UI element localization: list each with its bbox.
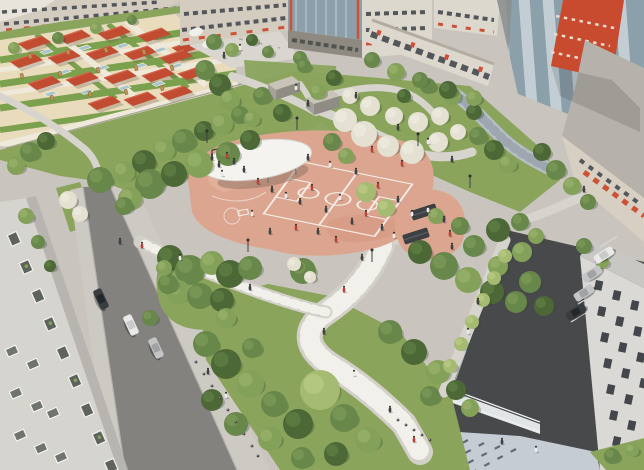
- person-head: [377, 182, 379, 184]
- person: [413, 438, 416, 443]
- tree-highlight: [263, 394, 276, 407]
- tree-highlight: [22, 144, 32, 154]
- tree-highlight: [160, 276, 170, 286]
- person-head: [535, 446, 537, 448]
- tree-highlight: [444, 360, 451, 367]
- tree-highlight: [32, 236, 39, 243]
- tree-highlight: [486, 142, 496, 152]
- person: [355, 170, 358, 175]
- person: [243, 168, 246, 173]
- person: [249, 286, 252, 291]
- tree-highlight: [202, 253, 214, 265]
- tree-highlight: [428, 362, 440, 374]
- tree-highlight: [213, 115, 224, 126]
- person: [141, 244, 144, 249]
- person: [323, 330, 326, 335]
- person: [119, 240, 122, 245]
- bollard-cap: [251, 445, 252, 446]
- bollard-cap: [195, 361, 196, 362]
- tree-highlight: [134, 152, 146, 164]
- tree-highlight: [233, 108, 242, 117]
- person: [451, 158, 454, 163]
- tree-highlight: [159, 248, 172, 261]
- person-head: [427, 206, 429, 208]
- person: [211, 156, 214, 161]
- tree-highlight: [529, 230, 537, 238]
- tree-highlight: [365, 54, 373, 62]
- tree-highlight: [19, 210, 27, 218]
- person: [535, 448, 538, 453]
- person-head: [451, 156, 453, 158]
- tree-highlight: [362, 98, 372, 108]
- tree-highlight: [410, 242, 422, 254]
- tree-highlight: [357, 430, 370, 443]
- person: [239, 46, 242, 51]
- person-head: [221, 170, 223, 172]
- tree-highlight: [207, 36, 215, 44]
- tree-highlight: [507, 293, 518, 304]
- tree-highlight: [211, 76, 222, 87]
- tree-highlight: [260, 429, 272, 441]
- tree-highlight: [457, 270, 470, 283]
- person-head: [449, 230, 451, 232]
- person-head: [411, 210, 413, 212]
- person-head: [271, 186, 273, 188]
- person-head: [295, 84, 297, 86]
- person: [381, 226, 384, 231]
- tree-highlight: [89, 170, 102, 183]
- person: [233, 160, 236, 165]
- tree-highlight: [490, 258, 500, 268]
- person-head: [233, 158, 235, 160]
- tree-highlight: [91, 23, 97, 29]
- tree-highlight: [380, 322, 392, 334]
- tree-highlight: [339, 150, 347, 158]
- tree-highlight: [293, 449, 304, 460]
- tree-highlight: [467, 106, 475, 114]
- person: [339, 196, 342, 201]
- person: [335, 238, 338, 243]
- tree-highlight: [387, 109, 396, 118]
- tree-highlight: [402, 142, 414, 154]
- bollard-cap: [227, 409, 228, 410]
- person: [351, 220, 354, 225]
- tree-highlight: [501, 157, 510, 166]
- tree-highlight: [196, 123, 206, 133]
- person: [401, 162, 404, 167]
- tree-highlight: [222, 92, 232, 102]
- tree-highlight: [514, 244, 524, 254]
- person: [317, 230, 320, 235]
- bollard-cap: [429, 439, 430, 440]
- person-head: [343, 286, 345, 288]
- tree-highlight: [521, 273, 532, 284]
- person-head: [239, 44, 241, 46]
- person: [361, 256, 364, 261]
- person-head: [501, 438, 503, 440]
- tree-highlight: [453, 219, 462, 228]
- person: [389, 408, 392, 413]
- tree-highlight: [413, 74, 421, 82]
- person: [299, 200, 302, 205]
- tree-highlight: [218, 310, 228, 320]
- tree-highlight: [422, 388, 432, 398]
- tree-highlight: [163, 164, 176, 177]
- tree-highlight: [39, 134, 48, 143]
- tree-highlight: [245, 113, 253, 121]
- light-head: [247, 239, 250, 242]
- tree-highlight: [499, 250, 506, 257]
- person: [501, 440, 504, 445]
- tree-highlight: [581, 196, 589, 204]
- tree-highlight: [288, 258, 295, 265]
- tree-highlight: [326, 444, 338, 456]
- tree-highlight: [53, 33, 59, 39]
- person-head: [119, 238, 121, 240]
- person-head: [381, 224, 383, 226]
- tree-highlight: [174, 131, 186, 143]
- person-head: [413, 436, 415, 438]
- person-head: [251, 210, 253, 212]
- tree-highlight: [536, 298, 546, 308]
- person-head: [353, 370, 355, 372]
- person-head: [257, 178, 259, 180]
- tree-highlight: [389, 65, 398, 74]
- bollard-cap: [219, 397, 220, 398]
- tree-highlight: [379, 137, 390, 148]
- person: [397, 126, 400, 131]
- tree-highlight: [128, 16, 133, 21]
- person: [269, 230, 272, 235]
- tree-highlight: [226, 44, 233, 51]
- tree-highlight: [247, 35, 253, 41]
- bollard-cap: [235, 421, 236, 422]
- tree-highlight: [403, 342, 416, 355]
- person: [179, 256, 182, 261]
- tree-highlight: [463, 401, 472, 410]
- bollard-cap: [243, 433, 244, 434]
- person: [443, 218, 446, 223]
- person: [393, 234, 396, 239]
- tree-highlight: [441, 83, 450, 92]
- person-head: [307, 154, 309, 156]
- tree-highlight: [242, 132, 252, 142]
- bollard-cap: [421, 434, 422, 435]
- tree-highlight: [626, 444, 633, 451]
- tree-highlight: [535, 145, 544, 154]
- person-head: [329, 161, 331, 163]
- tree-highlight: [189, 286, 202, 299]
- tree-highlight: [244, 340, 254, 350]
- person-head: [355, 92, 357, 94]
- person-head: [311, 184, 313, 186]
- light-head: [296, 117, 299, 120]
- bollard-cap: [211, 385, 212, 386]
- person-head: [351, 218, 353, 220]
- tree-highlight: [358, 184, 368, 194]
- tree-highlight: [240, 258, 252, 270]
- tree-highlight: [455, 338, 462, 345]
- tree-highlight: [433, 109, 442, 118]
- person-head: [339, 194, 341, 196]
- person-head: [427, 138, 429, 140]
- tree-highlight: [195, 334, 208, 347]
- tree-highlight: [219, 263, 233, 277]
- tree-highlight: [433, 255, 447, 269]
- person: [355, 94, 358, 99]
- tree-highlight: [311, 86, 319, 94]
- light-head: [371, 249, 374, 252]
- tree-highlight: [197, 62, 207, 72]
- tree-highlight: [488, 272, 495, 279]
- light-head: [206, 130, 209, 133]
- person-head: [323, 328, 325, 330]
- person-head: [451, 243, 453, 245]
- person-head: [225, 392, 227, 394]
- tree-highlight: [305, 272, 311, 278]
- tree-highlight: [212, 290, 224, 302]
- tree-highlight: [605, 450, 613, 458]
- person: [271, 188, 274, 193]
- person: [295, 86, 298, 91]
- person: [427, 140, 430, 145]
- tree-highlight: [226, 414, 238, 426]
- person: [257, 180, 260, 185]
- tree-highlight: [343, 90, 351, 98]
- person: [311, 186, 314, 191]
- person-head: [397, 124, 399, 126]
- person-head: [285, 192, 287, 194]
- person-head: [249, 284, 251, 286]
- person-head: [325, 206, 327, 208]
- tree-highlight: [214, 352, 229, 367]
- person: [325, 208, 328, 213]
- light-head: [469, 175, 472, 178]
- person-head: [583, 186, 585, 188]
- person-head: [477, 298, 479, 300]
- person-head: [307, 100, 309, 102]
- tree-highlight: [157, 262, 165, 270]
- person-head: [223, 52, 225, 54]
- tree-highlight: [429, 210, 437, 218]
- person: [285, 194, 288, 199]
- tree-highlight: [45, 261, 51, 267]
- tree-highlight: [155, 141, 166, 152]
- person: [329, 163, 332, 168]
- person: [307, 156, 310, 161]
- person: [411, 212, 414, 217]
- tree-highlight: [430, 134, 440, 144]
- person: [467, 330, 470, 335]
- person-head: [226, 152, 228, 154]
- person-head: [355, 168, 357, 170]
- person: [353, 372, 356, 377]
- person: [427, 208, 430, 213]
- tree-highlight: [577, 240, 585, 248]
- tree-highlight: [548, 162, 558, 172]
- person-head: [361, 254, 363, 256]
- tree-highlight: [488, 220, 500, 232]
- person-head: [365, 210, 367, 212]
- light-head: [417, 133, 420, 136]
- tree-highlight: [398, 90, 405, 97]
- tree-highlight: [61, 193, 70, 202]
- tree-highlight: [333, 407, 347, 421]
- person-head: [335, 236, 337, 238]
- person-head: [269, 228, 271, 230]
- tree-highlight: [117, 199, 126, 208]
- person-head: [389, 406, 391, 408]
- bollard-cap: [413, 429, 414, 430]
- person: [225, 394, 228, 399]
- tree-highlight: [304, 374, 324, 394]
- tree-highlight: [275, 106, 284, 115]
- person-head: [141, 242, 143, 244]
- tree-highlight: [143, 312, 151, 320]
- bollard-cap: [397, 419, 398, 420]
- person-head: [443, 216, 445, 218]
- person-head: [218, 161, 220, 163]
- tree-highlight: [471, 129, 480, 138]
- tree-highlight: [335, 110, 347, 122]
- tree-highlight: [451, 126, 459, 134]
- tree-highlight: [286, 412, 301, 427]
- tree-highlight: [239, 373, 253, 387]
- tree-highlight: [9, 43, 15, 49]
- person: [377, 184, 380, 189]
- tree-highlight: [218, 144, 230, 156]
- tree-highlight: [298, 60, 305, 67]
- tree-highlight: [325, 135, 334, 144]
- tree-highlight: [9, 159, 18, 168]
- person-head: [397, 196, 399, 198]
- person: [307, 102, 310, 107]
- tree-highlight: [327, 72, 335, 80]
- person-head: [393, 232, 395, 234]
- tree-highlight: [203, 391, 214, 402]
- tree-highlight: [115, 163, 126, 174]
- bollard-cap: [203, 373, 204, 374]
- person-head: [211, 154, 213, 156]
- tree-highlight: [467, 92, 475, 100]
- render-canvas: [0, 0, 644, 470]
- person: [226, 154, 229, 159]
- tree-highlight: [138, 172, 153, 187]
- tree-highlight: [410, 114, 420, 124]
- person: [397, 198, 400, 203]
- person-head: [179, 254, 181, 256]
- person-head: [299, 198, 301, 200]
- bollard-cap: [405, 424, 406, 425]
- tree-highlight: [73, 208, 81, 216]
- person: [221, 172, 224, 177]
- tree-highlight: [466, 316, 473, 323]
- tree-highlight: [513, 215, 522, 224]
- person: [449, 232, 452, 237]
- person-head: [295, 224, 297, 226]
- tree-highlight: [465, 237, 476, 248]
- bollard-cap: [257, 455, 258, 456]
- person-head: [371, 146, 373, 148]
- person: [207, 370, 210, 375]
- person: [223, 54, 226, 59]
- tree-highlight: [448, 382, 458, 392]
- tree-highlight: [294, 52, 301, 59]
- tree-highlight: [379, 201, 388, 210]
- person: [583, 188, 586, 193]
- person: [295, 226, 298, 231]
- courtyard-render: [0, 0, 644, 470]
- tree-highlight: [255, 89, 264, 98]
- tree-highlight: [263, 47, 269, 53]
- person: [365, 212, 368, 217]
- person-head: [467, 328, 469, 330]
- person: [477, 300, 480, 305]
- person: [371, 148, 374, 153]
- person: [451, 245, 454, 250]
- person-head: [207, 368, 209, 370]
- tree-highlight: [188, 153, 202, 167]
- person-head: [317, 228, 319, 230]
- person-head: [243, 166, 245, 168]
- person: [218, 163, 221, 168]
- tree-highlight: [353, 124, 366, 137]
- person: [251, 212, 254, 217]
- tree-highlight: [565, 179, 574, 188]
- person: [343, 288, 346, 293]
- person-head: [401, 160, 403, 162]
